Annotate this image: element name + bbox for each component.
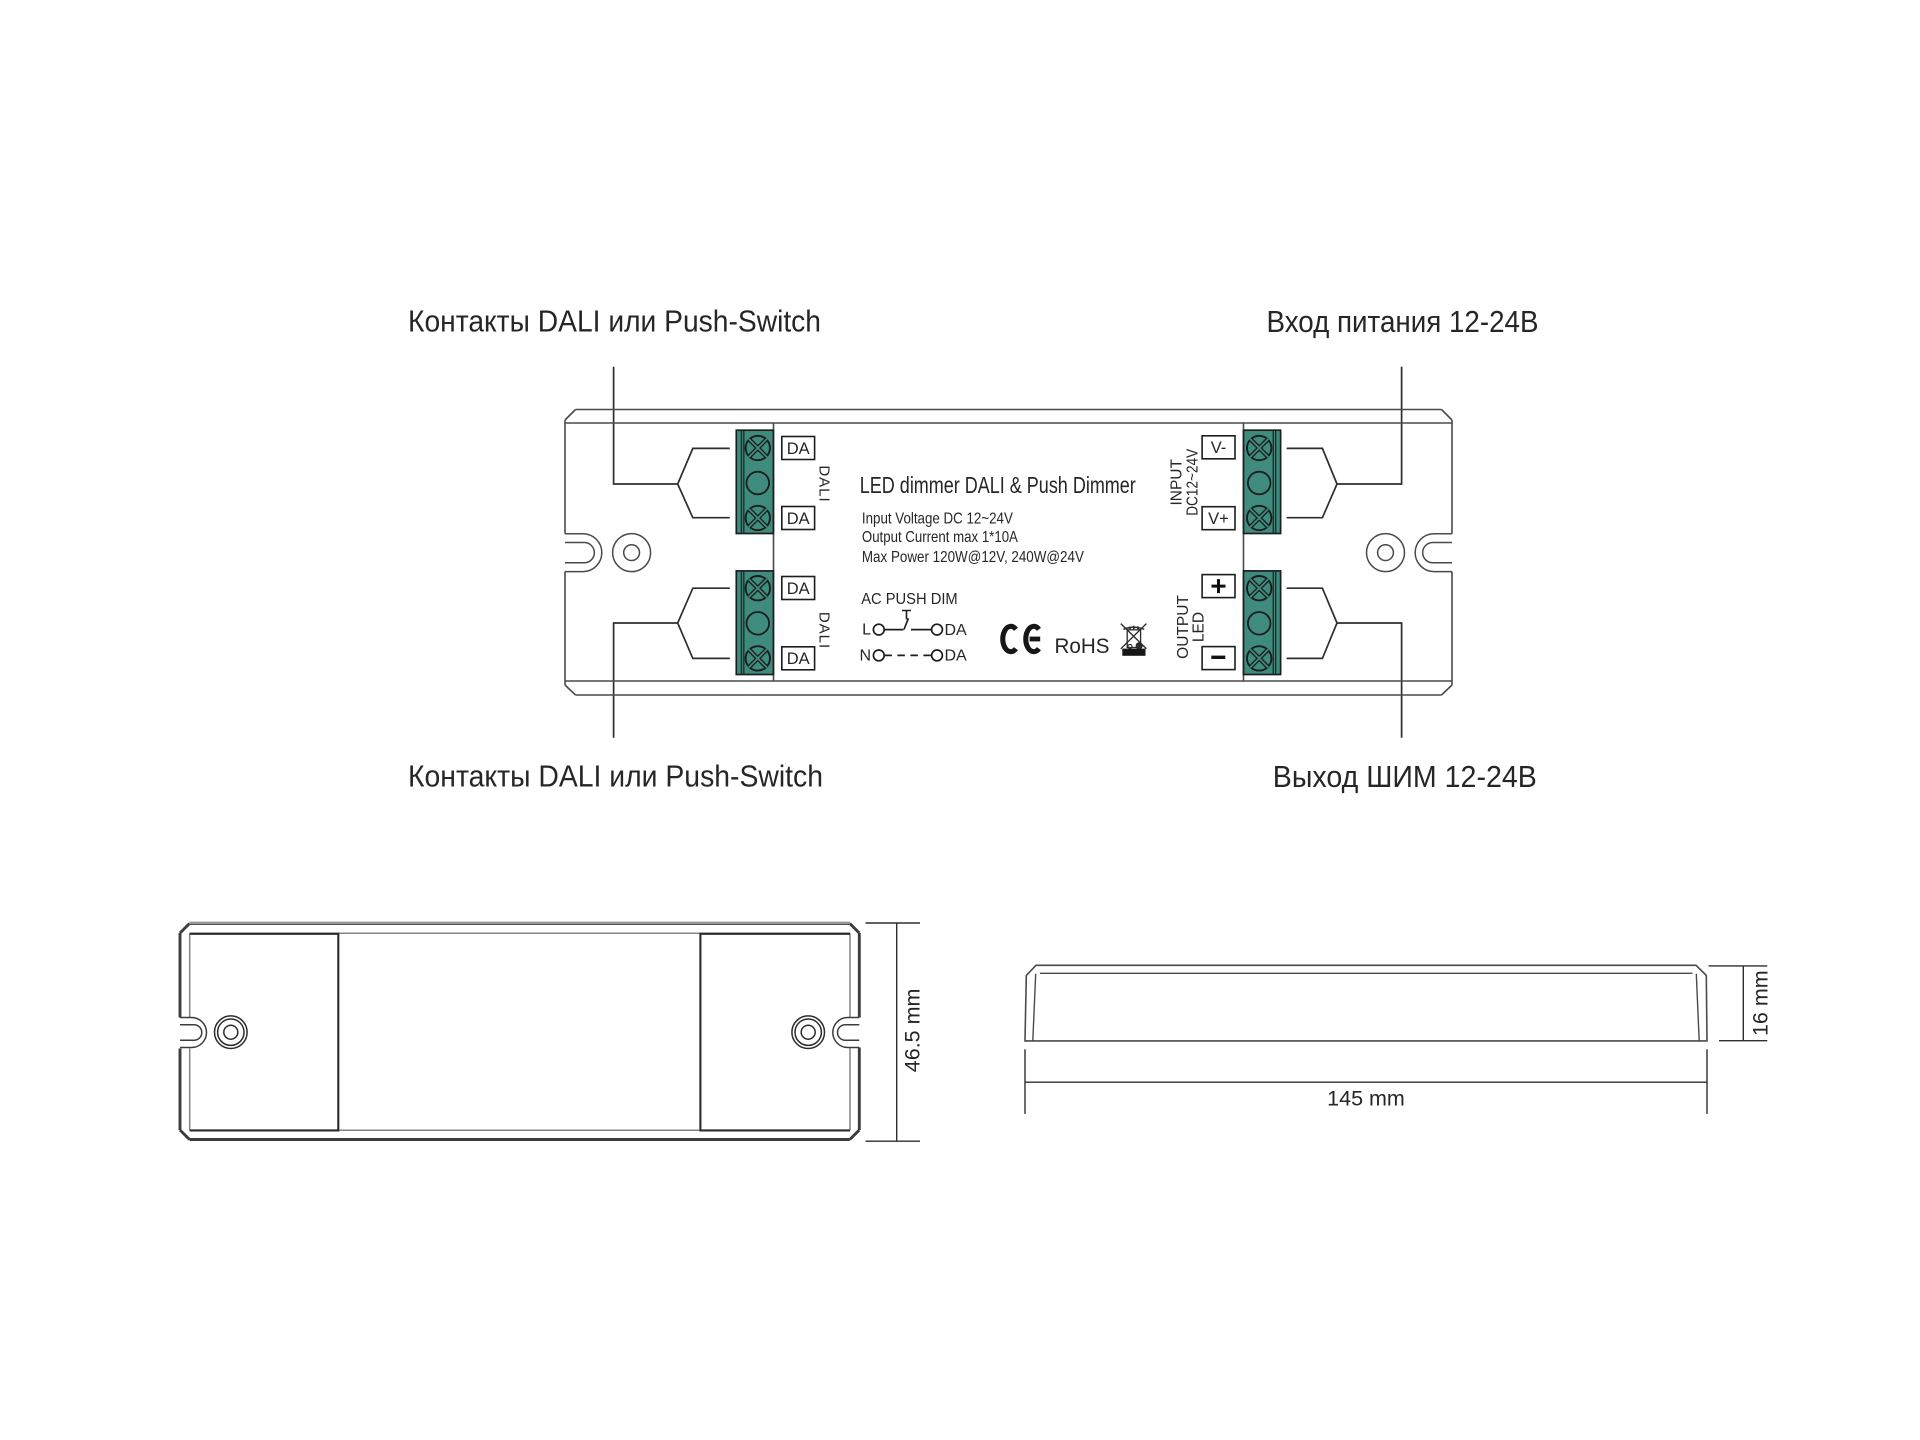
svg-text:145 mm: 145 mm [1327,1087,1405,1111]
svg-text:LED: LED [1191,612,1208,642]
svg-text:DA: DA [787,650,810,668]
svg-text:DA: DA [787,510,810,528]
svg-text:DA: DA [787,580,810,598]
svg-text:LED dimmer DALI & Push Dimmer: LED dimmer DALI & Push Dimmer [860,472,1136,498]
svg-text:DALI: DALI [815,612,832,649]
svg-text:DC12~24V: DC12~24V [1185,448,1202,516]
svg-text:OUTPUT: OUTPUT [1175,595,1192,659]
svg-text:DA: DA [945,622,968,639]
svg-text:L: L [862,621,871,638]
svg-text:DALI: DALI [815,465,832,502]
svg-text:Контакты DALI или Push-Switch: Контакты DALI или Push-Switch [408,759,823,794]
svg-text:16 mm: 16 mm [1748,970,1772,1036]
svg-text:V-: V- [1211,439,1227,457]
svg-text:AC PUSH DIM: AC PUSH DIM [861,591,958,608]
svg-text:Output Current max 1*10A: Output Current max 1*10A [862,529,1018,546]
svg-text:DA: DA [787,440,810,458]
svg-text:RoHS: RoHS [1055,634,1110,658]
svg-text:Max Power 120W@12V, 240W@24V: Max Power 120W@12V, 240W@24V [862,549,1084,566]
svg-text:Вход питания 12-24В: Вход питания 12-24В [1267,304,1539,339]
svg-text:Выход ШИМ 12-24В: Выход ШИМ 12-24В [1273,759,1537,794]
svg-text:46.5 mm: 46.5 mm [901,989,925,1073]
svg-text:V+: V+ [1208,510,1229,528]
svg-text:DA: DA [945,648,968,665]
svg-text:Контакты DALI или Push-Switch: Контакты DALI или Push-Switch [408,304,821,339]
svg-text:Input Voltage DC 12~24V: Input Voltage DC 12~24V [862,510,1013,527]
svg-text:N: N [859,647,871,664]
svg-text:INPUT: INPUT [1169,459,1186,506]
